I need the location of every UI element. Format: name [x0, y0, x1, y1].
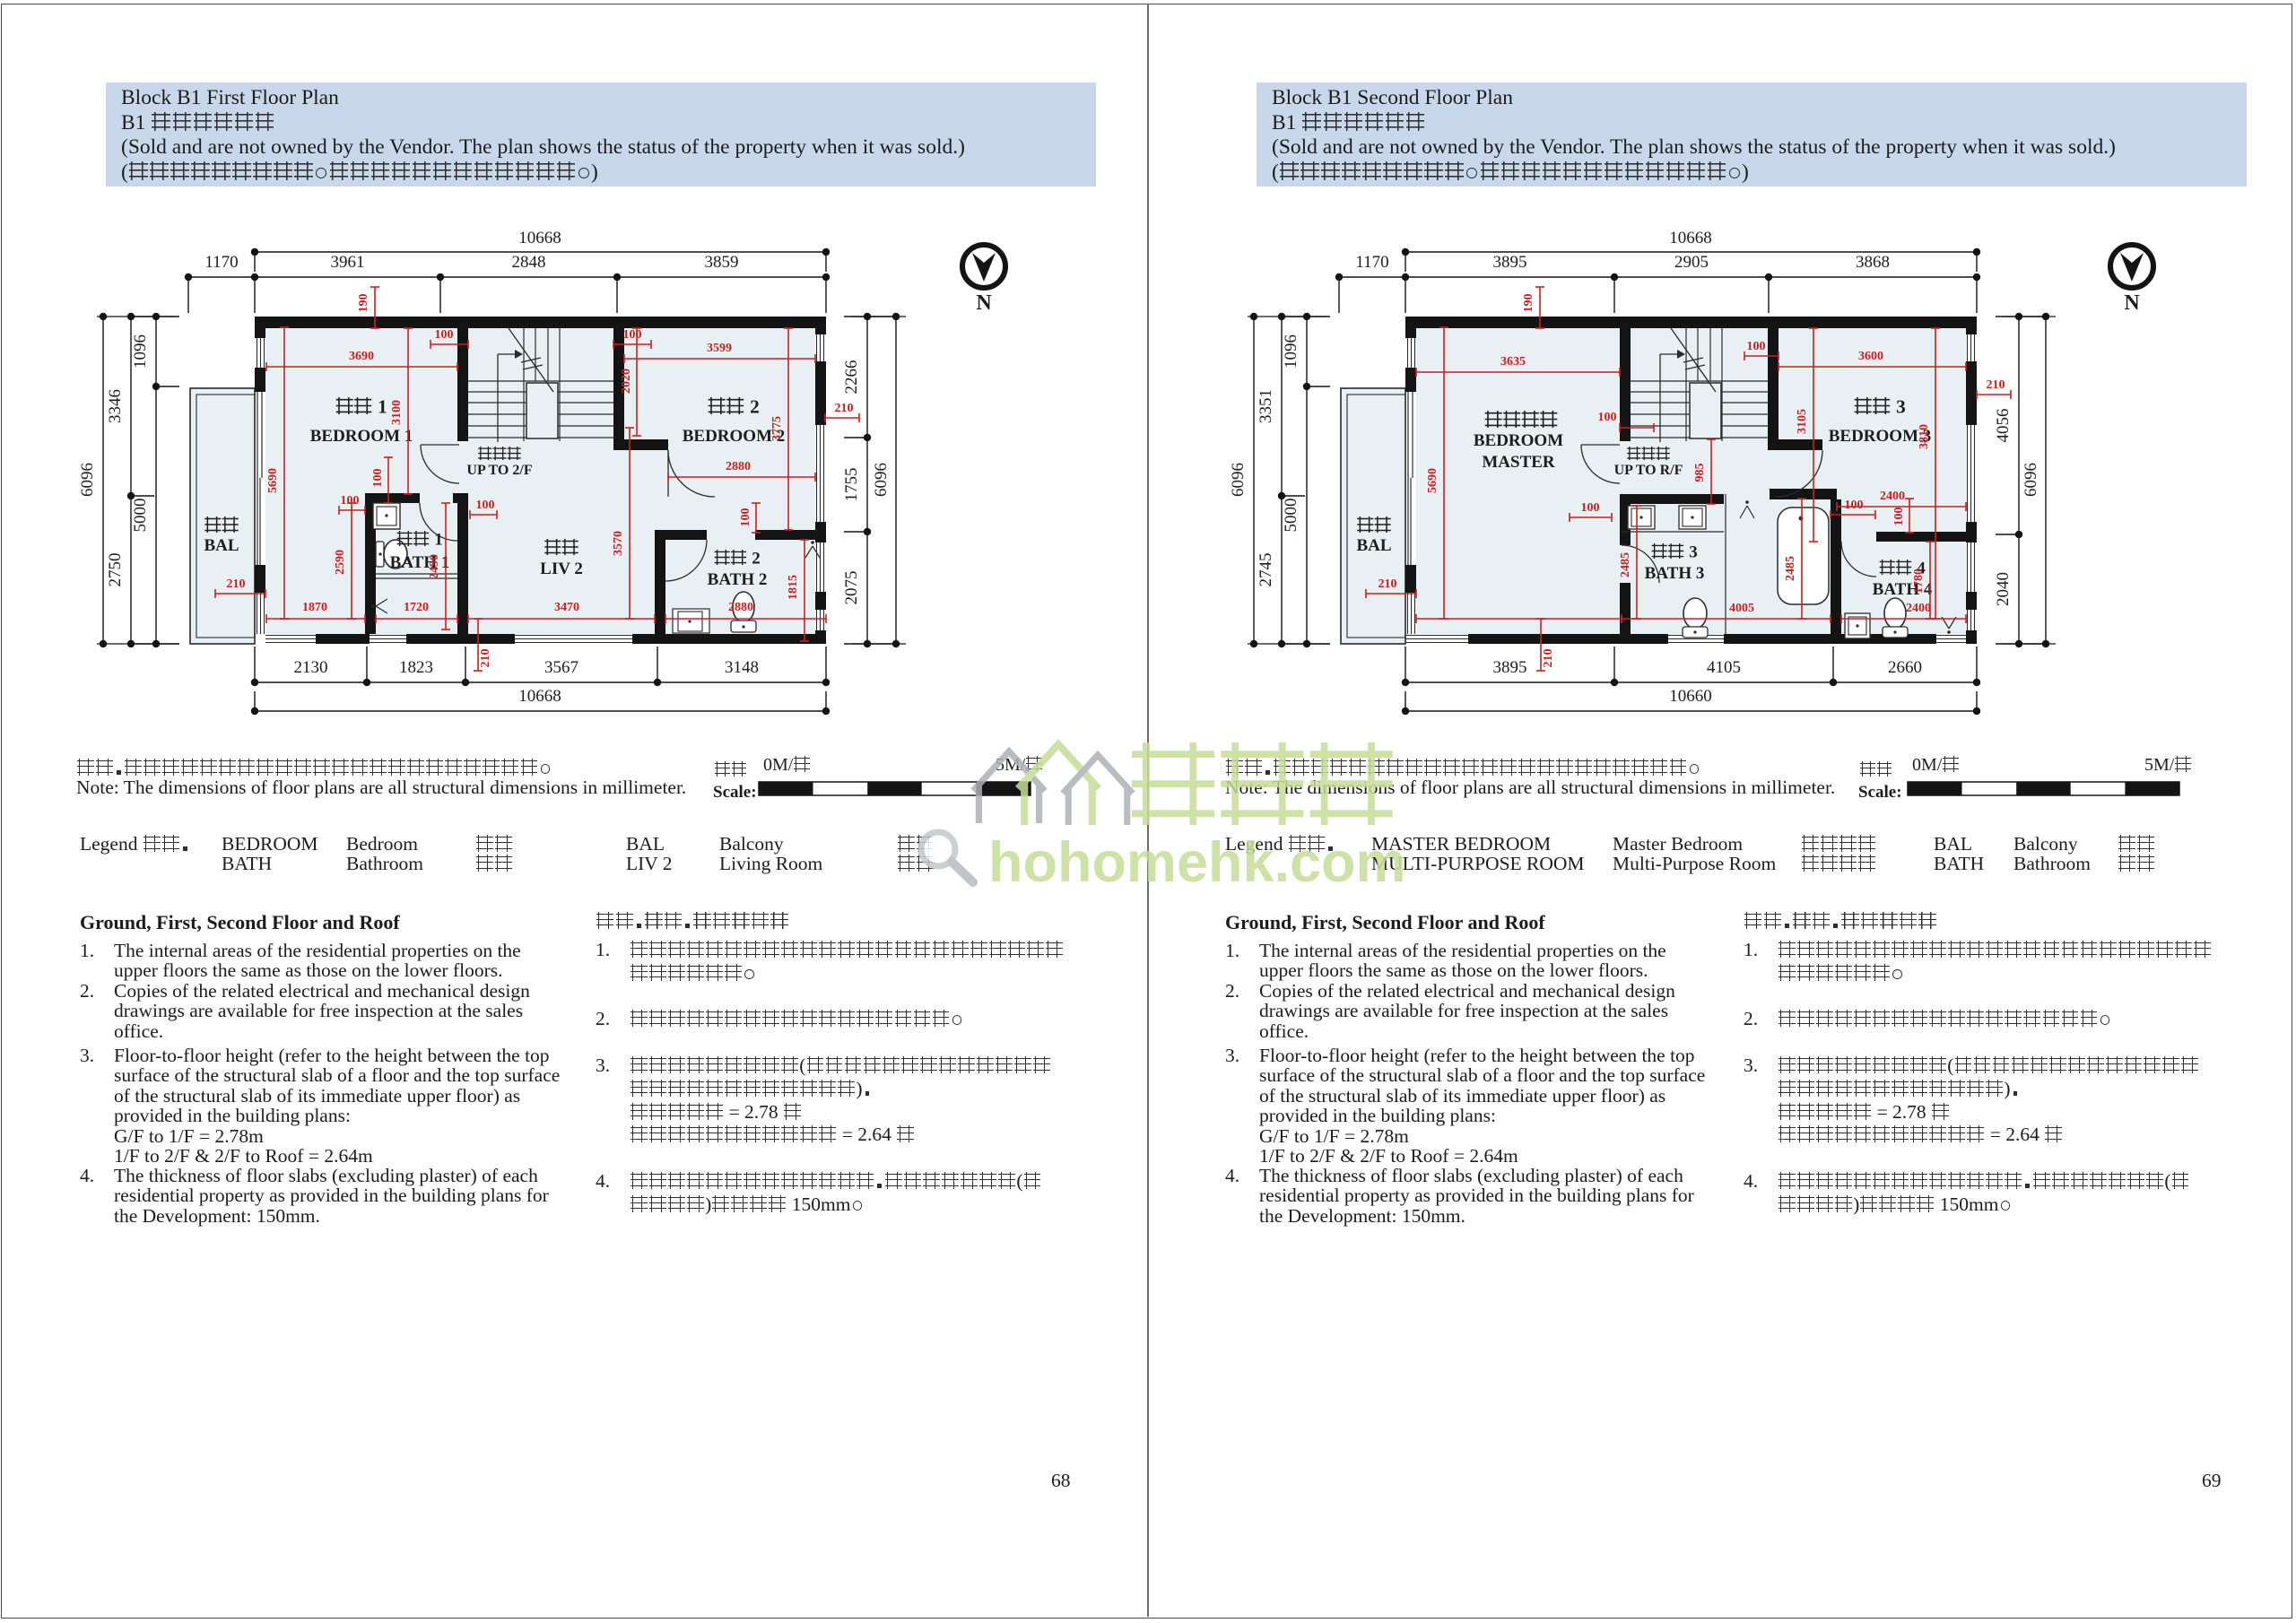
svg-text:2745: 2745: [1257, 553, 1275, 587]
svg-text:100: 100: [435, 328, 454, 342]
svg-text:6096: 6096: [1229, 463, 1248, 497]
svg-text:10668: 10668: [518, 687, 561, 706]
svg-text:2590: 2590: [334, 550, 347, 575]
svg-text:3570: 3570: [612, 531, 625, 556]
svg-text:3100: 3100: [390, 400, 404, 425]
svg-text:210: 210: [1542, 649, 1555, 668]
svg-text:10668: 10668: [1669, 229, 1712, 247]
svg-text:3895: 3895: [1493, 658, 1527, 677]
svg-text:BATH 2: BATH 2: [708, 570, 768, 589]
svg-text:100: 100: [1892, 508, 1906, 526]
svg-text:210: 210: [479, 649, 492, 668]
svg-text:2880: 2880: [726, 460, 751, 473]
svg-text:3: 3: [1896, 396, 1906, 418]
svg-text:2: 2: [750, 396, 760, 418]
svg-text:3346: 3346: [106, 389, 125, 423]
svg-text:3810: 3810: [1918, 424, 1931, 449]
svg-text:UP TO 2/F: UP TO 2/F: [466, 463, 532, 478]
svg-text:3470: 3470: [554, 601, 579, 614]
svg-text:1: 1: [434, 531, 443, 550]
svg-text:6096: 6096: [2022, 463, 2040, 497]
svg-text:4056: 4056: [1994, 409, 2013, 443]
svg-text:2880: 2880: [728, 601, 753, 614]
svg-text:MASTER: MASTER: [1482, 453, 1555, 472]
svg-text:10668: 10668: [518, 229, 561, 247]
svg-text:100: 100: [1581, 501, 1600, 515]
svg-text:2130: 2130: [294, 658, 328, 677]
svg-text:1823: 1823: [399, 658, 433, 677]
svg-text:2660: 2660: [1888, 658, 1922, 677]
svg-text:1780: 1780: [1912, 568, 1926, 594]
svg-text:2848: 2848: [512, 253, 546, 272]
svg-text:1096: 1096: [131, 334, 150, 369]
svg-text:1: 1: [378, 396, 387, 418]
svg-text:100: 100: [623, 328, 642, 342]
svg-text:3567: 3567: [544, 658, 578, 677]
svg-text:N: N: [976, 291, 992, 315]
svg-text:2020: 2020: [620, 369, 633, 394]
svg-text:3599: 3599: [707, 342, 732, 355]
svg-text:100: 100: [371, 469, 385, 488]
svg-text:BEDROOM 1: BEDROOM 1: [310, 427, 413, 446]
svg-text:190: 190: [357, 294, 370, 313]
svg-text:2075: 2075: [842, 571, 861, 605]
svg-text:BEDROOM 3: BEDROOM 3: [1829, 427, 1932, 446]
svg-text:100: 100: [476, 499, 495, 512]
svg-text:1755: 1755: [842, 468, 861, 502]
svg-text:BATH 3: BATH 3: [1645, 564, 1705, 583]
svg-text:5000: 5000: [1282, 499, 1300, 533]
svg-text:2490: 2490: [428, 554, 441, 579]
svg-text:2400: 2400: [1906, 602, 1931, 615]
svg-text:100: 100: [739, 508, 752, 527]
svg-text:2040: 2040: [1994, 572, 2013, 606]
svg-text:190: 190: [1522, 294, 1535, 313]
svg-text:3105: 3105: [1796, 409, 1809, 434]
svg-text:2400: 2400: [1880, 490, 1905, 503]
svg-text:3775: 3775: [770, 416, 784, 441]
svg-text:5000: 5000: [131, 499, 150, 533]
svg-text:3148: 3148: [725, 658, 759, 677]
svg-text:1720: 1720: [404, 601, 429, 614]
svg-text:3600: 3600: [1858, 350, 1883, 363]
svg-text:BAL: BAL: [204, 536, 239, 555]
svg-text:100: 100: [1598, 411, 1617, 424]
svg-text:5690: 5690: [1426, 468, 1439, 493]
svg-text:100: 100: [341, 494, 360, 508]
svg-text:3690: 3690: [349, 350, 374, 363]
svg-text:1170: 1170: [1355, 253, 1388, 272]
svg-text:6096: 6096: [78, 463, 97, 497]
svg-text:4005: 4005: [1729, 602, 1754, 615]
svg-text:6096: 6096: [872, 463, 891, 497]
svg-text:3961: 3961: [331, 253, 365, 272]
svg-text:3868: 3868: [1856, 253, 1890, 272]
svg-text:4105: 4105: [1707, 658, 1741, 677]
svg-text:N: N: [2124, 291, 2140, 315]
svg-text:3351: 3351: [1257, 389, 1275, 423]
svg-text:210: 210: [835, 402, 854, 415]
svg-text:LIV 2: LIV 2: [540, 560, 583, 578]
svg-text:3895: 3895: [1493, 253, 1527, 272]
svg-text:3635: 3635: [1500, 355, 1526, 369]
svg-text:3: 3: [1689, 543, 1698, 562]
svg-text:210: 210: [227, 577, 246, 591]
svg-text:2750: 2750: [106, 553, 125, 587]
svg-text:210: 210: [1378, 577, 1397, 591]
svg-text:BAL: BAL: [1356, 536, 1391, 555]
svg-text:1815: 1815: [787, 575, 800, 600]
svg-text:985: 985: [1693, 464, 1707, 482]
svg-text:210: 210: [1987, 378, 2005, 392]
svg-text:2905: 2905: [1674, 253, 1709, 272]
svg-text:1870: 1870: [302, 601, 327, 614]
svg-text:5690: 5690: [266, 468, 280, 493]
svg-text:2: 2: [752, 550, 761, 568]
svg-text:100: 100: [1845, 499, 1864, 512]
svg-text:1170: 1170: [204, 253, 238, 272]
svg-text:BEDROOM: BEDROOM: [1474, 431, 1563, 450]
svg-text:3859: 3859: [705, 253, 739, 272]
svg-text:UP TO R/F: UP TO R/F: [1614, 463, 1683, 478]
svg-text:100: 100: [1747, 340, 1766, 353]
svg-text:2485: 2485: [1619, 552, 1632, 577]
svg-text:10660: 10660: [1669, 687, 1712, 706]
svg-text:2266: 2266: [842, 360, 861, 395]
svg-text:1096: 1096: [1282, 334, 1300, 369]
svg-text:2485: 2485: [1784, 556, 1797, 581]
